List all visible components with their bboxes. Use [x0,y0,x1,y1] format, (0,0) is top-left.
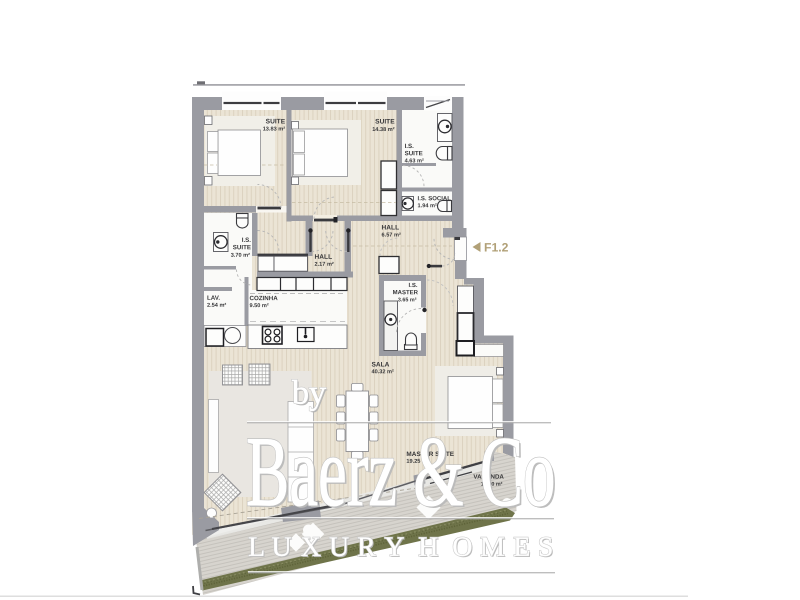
svg-text:F1.2: F1.2 [484,241,509,255]
svg-text:MASTER SUITE: MASTER SUITE [406,451,454,458]
svg-text:40.32 m²: 40.32 m² [371,369,394,375]
svg-text:4.63 m²: 4.63 m² [405,158,424,164]
svg-text:SUITE: SUITE [266,118,286,125]
svg-text:LAV.: LAV. [207,295,220,302]
svg-text:HALL: HALL [382,224,400,231]
svg-text:MASTER: MASTER [393,289,419,296]
svg-text:SUITE: SUITE [375,118,395,125]
svg-text:14.38 m²: 14.38 m² [372,127,395,133]
svg-text:COZINHA: COZINHA [249,295,278,302]
svg-text:2.17 m²: 2.17 m² [315,262,334,268]
svg-text:I.S.: I.S. [405,143,415,150]
svg-text:SUITE: SUITE [233,244,251,251]
svg-text:I.S. SOCIAL: I.S. SOCIAL [418,195,452,202]
svg-text:13.83 m²: 13.83 m² [263,127,286,133]
svg-text:I.S.: I.S. [408,282,417,289]
svg-text:I.S.: I.S. [242,237,252,244]
svg-text:1.94 m²: 1.94 m² [418,203,437,209]
svg-text:3.65 m²: 3.65 m² [398,297,417,303]
svg-text:HALL: HALL [315,254,333,261]
svg-text:SALA: SALA [371,361,389,368]
svg-text:2.54 m²: 2.54 m² [207,303,226,309]
svg-text:9.50 m²: 9.50 m² [249,303,268,309]
svg-text:6.57 m²: 6.57 m² [382,232,401,238]
svg-text:SUITE: SUITE [405,150,423,157]
svg-text:3.70 m²: 3.70 m² [231,253,250,259]
